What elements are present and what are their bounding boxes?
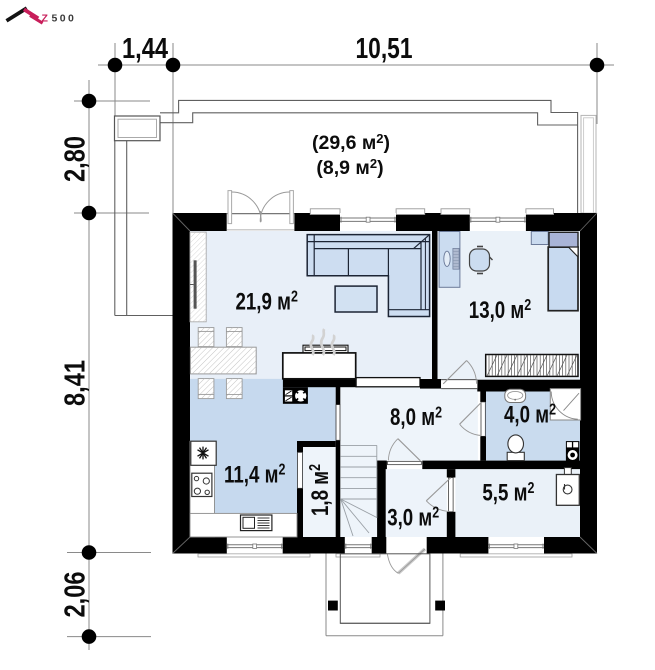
svg-text:3,0 м2: 3,0 м2 bbox=[387, 504, 439, 531]
svg-text:500: 500 bbox=[52, 13, 77, 25]
svg-text:11,4 м2: 11,4 м2 bbox=[224, 461, 285, 488]
svg-text:8,41: 8,41 bbox=[60, 360, 92, 406]
svg-text:2,06: 2,06 bbox=[60, 572, 92, 618]
svg-text:21,9 м2: 21,9 м2 bbox=[235, 288, 297, 315]
svg-text:2,80: 2,80 bbox=[60, 136, 92, 182]
svg-text:1,44: 1,44 bbox=[122, 33, 168, 65]
svg-text:13,0 м2: 13,0 м2 bbox=[469, 297, 531, 324]
svg-text:8,0 м2: 8,0 м2 bbox=[390, 404, 442, 431]
svg-text:10,51: 10,51 bbox=[356, 33, 413, 65]
svg-text:5,5 м2: 5,5 м2 bbox=[482, 480, 534, 507]
svg-text:Z: Z bbox=[42, 13, 49, 25]
svg-text:1,8 м2: 1,8 м2 bbox=[307, 464, 334, 516]
svg-text:4,0 м2: 4,0 м2 bbox=[504, 401, 556, 428]
